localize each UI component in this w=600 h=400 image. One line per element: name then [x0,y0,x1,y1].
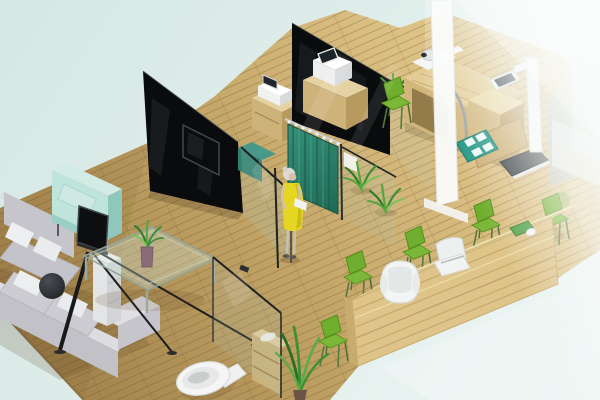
isometric-interior-scene [0,0,600,400]
vase [141,247,153,267]
plant-pot [293,390,307,400]
scene-canvas [0,0,600,400]
leg [294,230,295,254]
dark-ball-cushion [39,273,65,299]
reception-armchair [380,261,420,303]
face [289,173,297,181]
leg [287,230,288,253]
